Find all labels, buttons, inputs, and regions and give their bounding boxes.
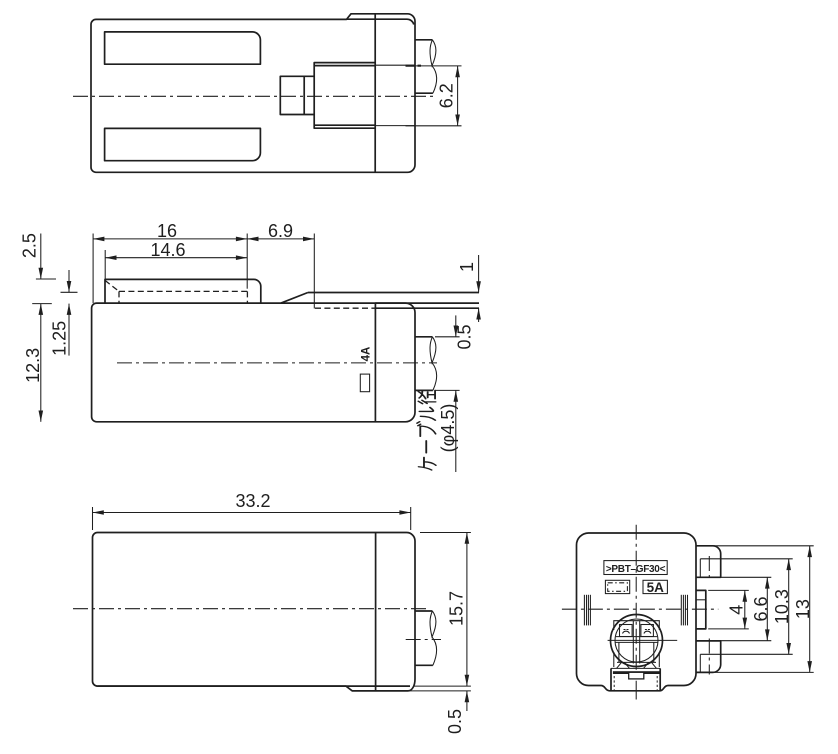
svg-text:15.7: 15.7 [447,591,467,626]
svg-text:4A: 4A [361,347,373,362]
svg-text:6.6: 6.6 [751,596,771,621]
svg-text:1: 1 [457,262,477,272]
svg-text:0.5: 0.5 [445,709,465,734]
svg-text:14.6: 14.6 [150,240,185,260]
svg-text:>PBT–GF30<: >PBT–GF30< [606,564,666,575]
svg-text:1.25: 1.25 [50,321,70,356]
svg-text:12.3: 12.3 [23,348,43,383]
svg-text:10.3: 10.3 [772,589,792,624]
svg-text:16: 16 [157,221,177,241]
svg-text:(φ4.5): (φ4.5) [438,404,458,453]
svg-text:5A: 5A [647,580,665,595]
svg-text:6.2: 6.2 [437,83,457,108]
svg-text:4: 4 [727,605,747,615]
svg-text:2.5: 2.5 [20,233,40,258]
svg-text:6.9: 6.9 [268,221,293,241]
svg-text:13: 13 [793,599,813,619]
svg-text:33.2: 33.2 [235,491,270,511]
